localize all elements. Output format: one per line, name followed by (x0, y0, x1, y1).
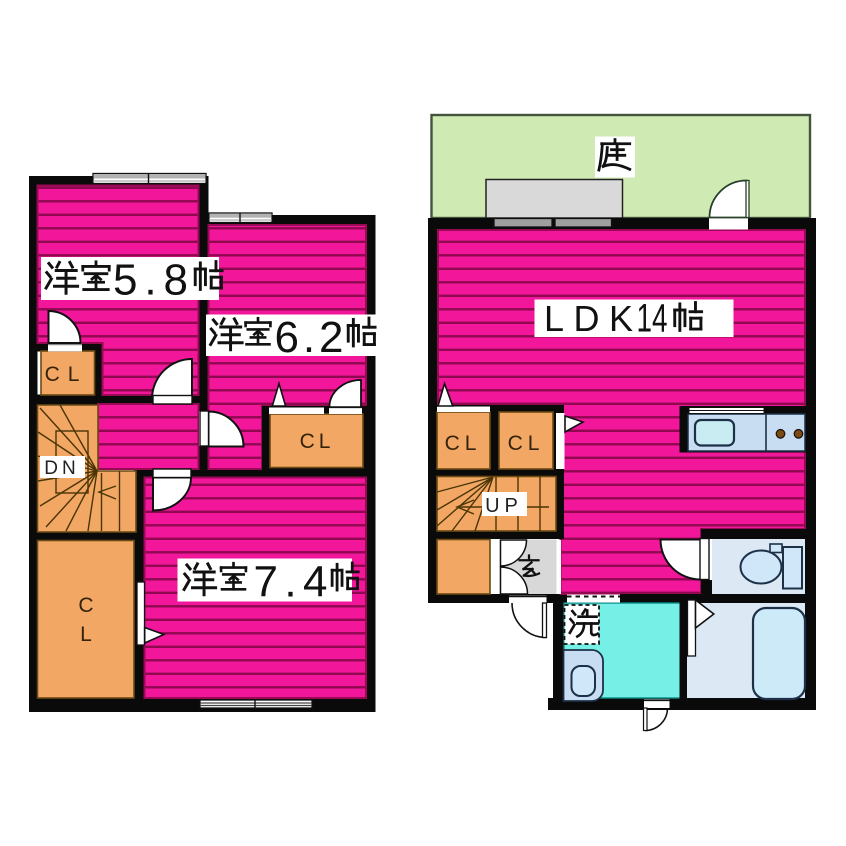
svg-text:L: L (80, 623, 92, 646)
svg-text:CL: CL (445, 432, 482, 455)
svg-text:7.4: 7.4 (254, 558, 328, 607)
svg-text:C: C (78, 594, 93, 617)
svg-text:5.8: 5.8 (113, 256, 188, 305)
svg-text:6.2: 6.2 (275, 313, 344, 362)
svg-text:CL: CL (300, 430, 335, 453)
svg-text:UP: UP (485, 495, 523, 517)
svg-text:CL: CL (45, 363, 88, 386)
svg-text:CL: CL (508, 432, 545, 455)
svg-text:LDK: LDK (544, 298, 633, 339)
svg-text:14: 14 (637, 297, 668, 341)
svg-text:DN: DN (44, 458, 79, 479)
